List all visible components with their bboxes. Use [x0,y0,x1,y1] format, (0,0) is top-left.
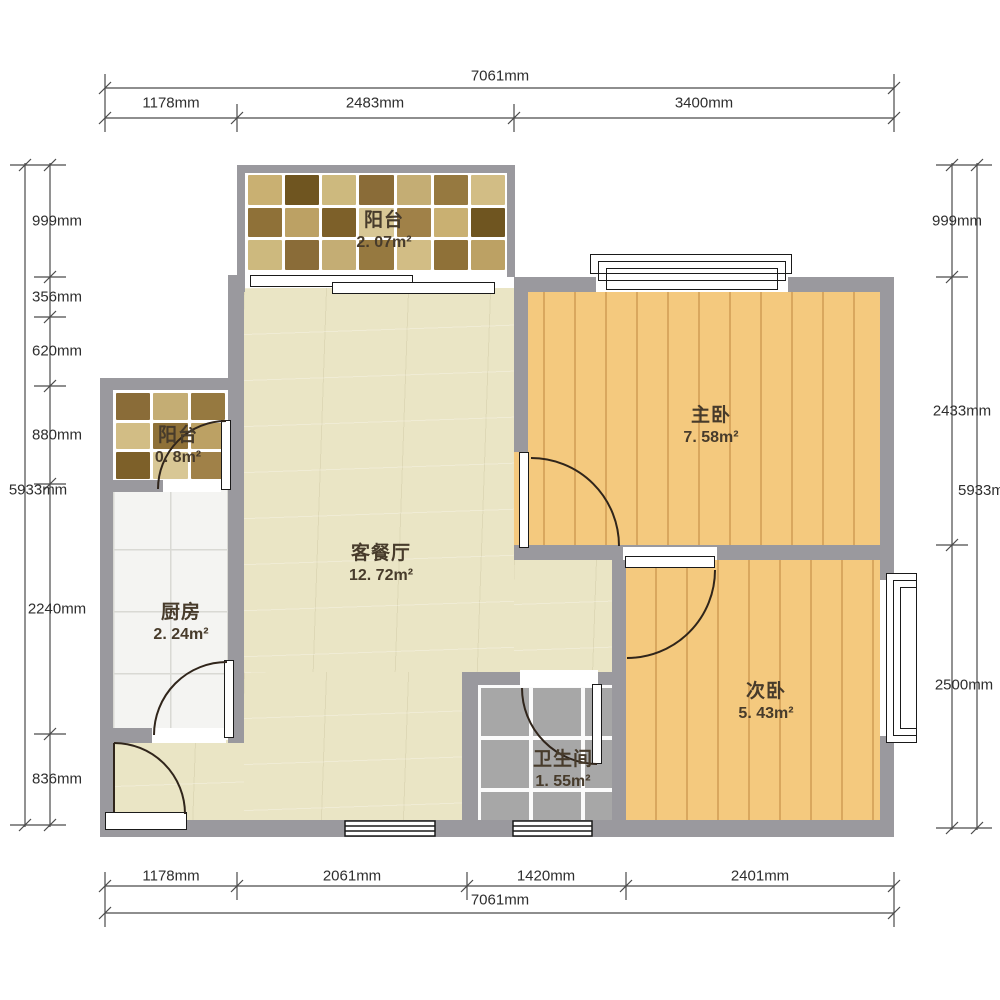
room-area: 0. 8m² [155,448,201,467]
dim-bottom-seg4: 2401mm [731,868,789,885]
room-name: 次卧 [738,681,793,704]
mosaic-tile [322,240,356,270]
dim-bottom-seg2: 2061mm [323,868,381,885]
left-balcony-top-wall [100,378,228,390]
mosaic-tile [322,175,356,205]
mosaic-tile [116,452,150,479]
room-area: 5. 43m² [738,704,793,723]
dim-left-seg5: 2240mm [28,601,86,618]
kitchen-door-leaf [224,660,234,738]
mosaic-tile [285,175,319,205]
mosaic-tile [471,175,505,205]
master-left-wall [514,292,528,452]
dim-right-seg1: 999mm [932,213,982,230]
second-bedroom-door-leaf [625,556,715,568]
room-name: 客餐厅 [349,543,413,566]
mosaic-tile [434,240,468,270]
mosaic-tile [248,240,282,270]
mosaic-tile [191,393,225,420]
second-window-icon-line3 [900,587,917,729]
room-label-living: 客餐厅 12. 72m² [349,543,413,585]
dim-left-seg6: 836mm [32,771,82,788]
south-wall [100,820,894,837]
dim-left-total: 5933mm [9,482,67,499]
master-door-leaf [519,452,529,548]
living-room-floor-mid [514,558,612,676]
mosaic-tile [285,208,319,238]
kitchen-door-opening [152,728,226,743]
dim-top-seg3: 3400mm [675,95,733,112]
west-wall [100,378,113,837]
room-area: 1. 55m² [533,772,593,791]
dim-top-total: 7061mm [471,68,529,85]
entry-hall-floor [113,740,244,822]
mosaic-tile [153,393,187,420]
balcony-sliding-door-leaf-2 [332,282,495,294]
room-name: 阳台 [155,425,201,448]
dim-left-seg4: 880mm [32,427,82,444]
dim-left-seg2: 356mm [32,289,82,306]
room-area: 2. 07m² [356,233,411,252]
room-label-balcony-left: 阳台 0. 8m² [155,425,201,467]
bathroom-door-leaf [592,684,602,764]
mosaic-tile [359,175,393,205]
room-area: 12. 72m² [349,566,413,585]
balcony-left-wall [237,165,245,292]
dim-top-seg2: 2483mm [346,95,404,112]
mosaic-tile [471,208,505,238]
mosaic-tile [434,175,468,205]
room-label-second: 次卧 5. 43m² [738,681,793,723]
mosaic-tile [285,240,319,270]
living-room-floor-bottom [244,672,462,822]
room-name: 阳台 [356,210,411,233]
room-label-kitchen: 厨房 2. 24m² [153,602,208,644]
room-label-balcony-top: 阳台 2. 07m² [356,210,411,252]
room-label-bath: 卫生间 1. 55m² [533,749,593,791]
mosaic-tile [434,208,468,238]
dim-left-seg3: 620mm [32,343,82,360]
dim-left-seg1: 999mm [32,213,82,230]
dim-bottom-seg3: 1420mm [517,868,575,885]
balcony-top-wall [237,165,515,173]
mosaic-tile [322,208,356,238]
mosaic-tile [397,175,431,205]
left-balcony-threshold [163,480,221,492]
left-balcony-door-leaf [221,420,231,490]
dim-right-total: 5933mm [958,482,1000,499]
dim-right-seg3: 2500mm [935,677,993,694]
balcony-right-wall [507,165,515,277]
mosaic-tile [248,175,282,205]
room-area: 7. 58m² [683,428,738,447]
mosaic-tile [248,208,282,238]
dim-right-seg2: 2433mm [933,403,991,420]
dim-top-seg1: 1178mm [142,95,199,112]
mosaic-tile [116,423,150,450]
mosaic-tile [471,240,505,270]
master-window-icon-line3 [606,268,778,290]
kitchen-bottom-wall [100,728,152,743]
left-balcony-bottom-wall [113,480,163,492]
dim-bottom-seg1: 1178mm [142,868,199,885]
room-name: 卫生间 [533,749,593,772]
dim-bottom-total: 7061mm [471,892,529,909]
room-label-master: 主卧 7. 58m² [683,405,738,447]
second-bedroom-left-wall [612,560,626,820]
floor-plan: 7061mm 1178mm 2483mm 3400mm 1178mm 2061m… [0,0,1000,1000]
room-name: 厨房 [153,602,208,625]
bathroom-left-wall [462,672,478,820]
room-area: 2. 24m² [153,625,208,644]
mosaic-tile [116,393,150,420]
entrance-door-opening [105,812,187,830]
room-name: 主卧 [683,405,738,428]
bathroom-door-opening [520,670,598,687]
